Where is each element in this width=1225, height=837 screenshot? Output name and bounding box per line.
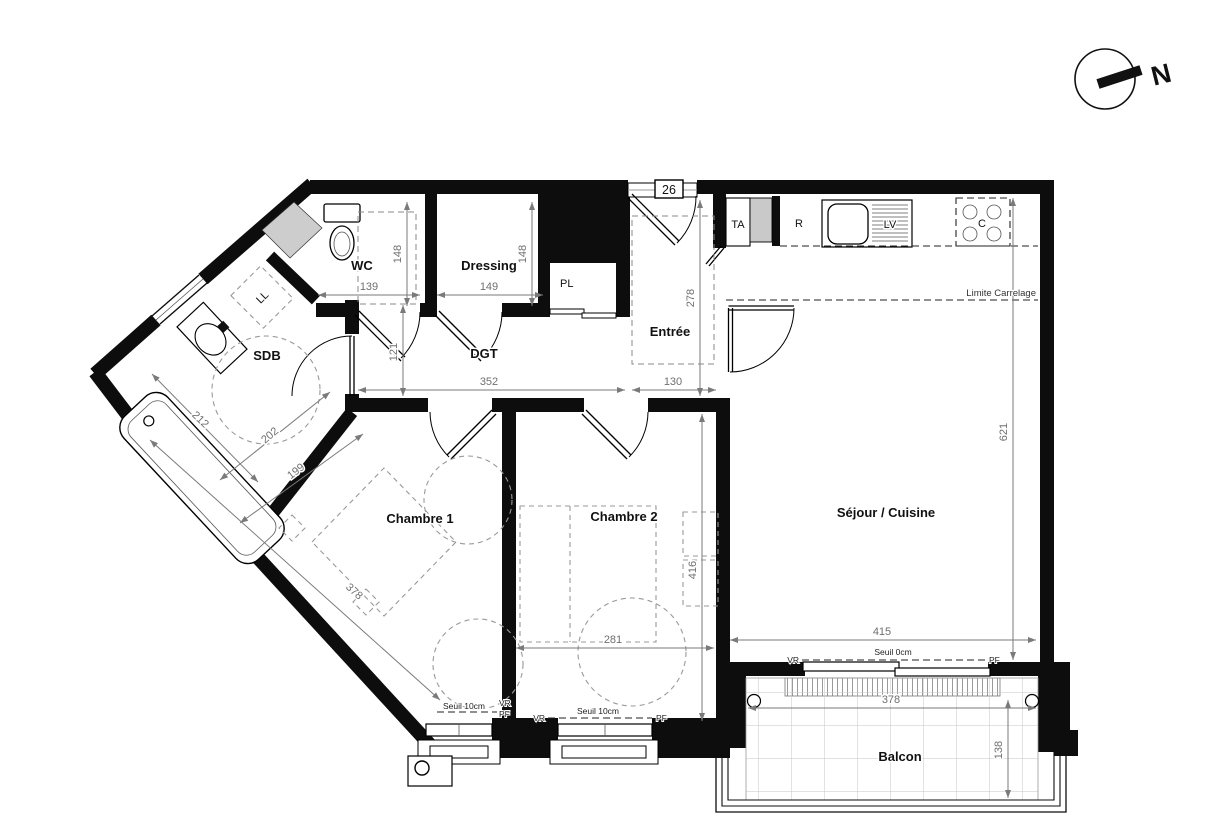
floor-plan-drawing: LL [0,0,1225,837]
chambre2-window [550,724,658,764]
dim-chambre2-width: 281 [604,634,622,646]
dim-dgt-height: 121 [388,343,400,361]
dim-dressing-width: 149 [480,281,498,293]
dim-entree-height: 278 [685,289,697,307]
wc-label: WC [351,258,373,273]
chambre2-clearance-circle [578,598,686,706]
sdb-door [292,336,354,396]
refrigerateur-label: R [795,218,803,230]
dim-balcon-width: 378 [882,694,900,706]
dim-chambre2-height: 416 [687,561,699,579]
vr-chambre2: VR [533,713,545,723]
unit-number-tag: 26 [655,180,683,198]
tableau-label: TA [731,219,745,231]
entree-label: Entrée [650,324,690,339]
chambre1-bed [312,468,456,616]
lave-vaisselle-label: LV [884,219,897,231]
seuil-sejour: Seuil 0cm [874,647,911,657]
ta-door [706,246,724,266]
north-label: N [1148,58,1174,92]
dim-dressing-height: 148 [517,245,529,263]
sejour-label: Séjour / Cuisine [837,505,935,520]
dim-sejour-width: 415 [873,626,891,638]
pf-sejour: PF [989,655,1000,665]
placard-label: PL [560,278,573,290]
vr-sejour: VR [787,655,799,665]
sdb-label: SDB [253,348,280,363]
pf-chambre2: PF [656,713,667,723]
balcony-post [748,695,761,708]
chambre2-label: Chambre 2 [590,509,657,524]
threshold-notes: Seuil 10cm VR PF VR Seuil 10cm PF VR Seu… [437,288,1036,723]
chambre1-clearance-circle [424,456,512,544]
limite-carrelage-label: Limite Carrelage [966,288,1036,299]
dim-wc-height: 148 [392,245,404,263]
pf-chambre1: PF [499,709,510,719]
chambre2-closet [683,512,718,556]
duct-shaft [262,202,322,258]
dim-dgt-width: 352 [480,376,498,388]
vr-chambre1: VR [499,698,511,708]
kitchen-cabinet [750,198,772,242]
pl-sliding-door [550,309,616,318]
chambre1-door [430,410,496,459]
entree-zone [632,216,714,364]
washing-machine-label: LL [254,289,271,306]
north-arrow-icon: N [1075,49,1174,109]
dressing-label: Dressing [461,258,517,273]
balcony-post [1026,695,1039,708]
kitchen-sink [822,200,912,247]
floor-plan-page: LL [0,0,1225,837]
unit-number: 26 [662,183,676,197]
seuil-chambre2: Seuil 10cm [577,706,619,716]
dim-entree-width: 130 [664,376,682,388]
cuisson-label: C [978,218,986,230]
chambre2-door [582,410,648,459]
sejour-door [729,306,795,372]
dim-sejour-height: 621 [998,423,1010,441]
balcon-label: Balcon [878,749,921,764]
chambre1-label: Chambre 1 [386,511,453,526]
dim-balcon-depth: 138 [993,741,1005,759]
rain-pipe [408,756,452,786]
dgt-label: DGT [470,346,498,361]
dim-wc-width: 139 [360,281,378,293]
dim-chambre1-length: 378 [343,581,365,602]
seuil-chambre1: Seuil 10cm [443,701,485,711]
washbasin [177,301,248,374]
toilet [324,204,360,260]
